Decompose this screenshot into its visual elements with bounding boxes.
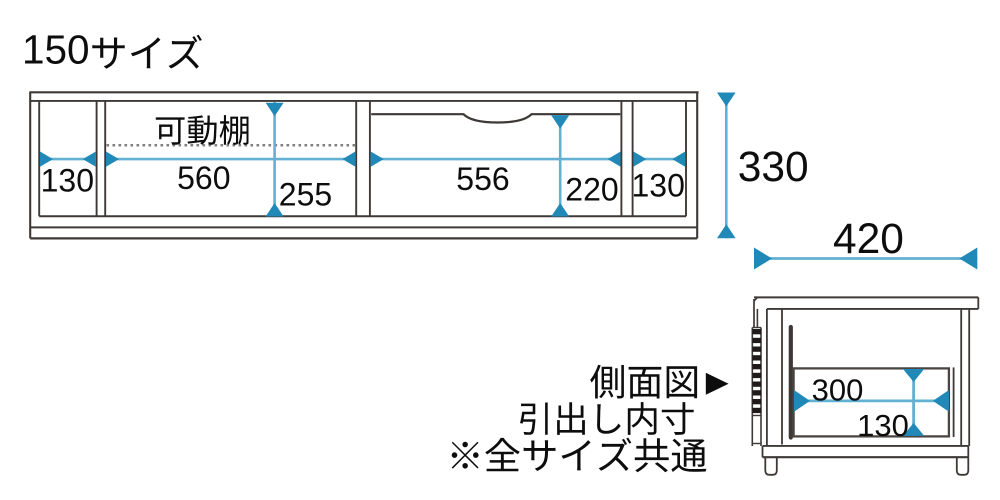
svg-text:130: 130	[857, 408, 909, 443]
svg-text:420: 420	[833, 216, 904, 263]
svg-text:220: 220	[565, 171, 618, 207]
svg-text:150: 150	[22, 26, 90, 72]
svg-text:556: 556	[456, 161, 509, 197]
svg-text:255: 255	[279, 176, 332, 212]
svg-text:130: 130	[632, 168, 685, 204]
svg-text:560: 560	[177, 160, 230, 196]
svg-text:300: 300	[812, 373, 864, 408]
svg-text:130: 130	[41, 162, 94, 198]
svg-text:330: 330	[738, 144, 809, 191]
